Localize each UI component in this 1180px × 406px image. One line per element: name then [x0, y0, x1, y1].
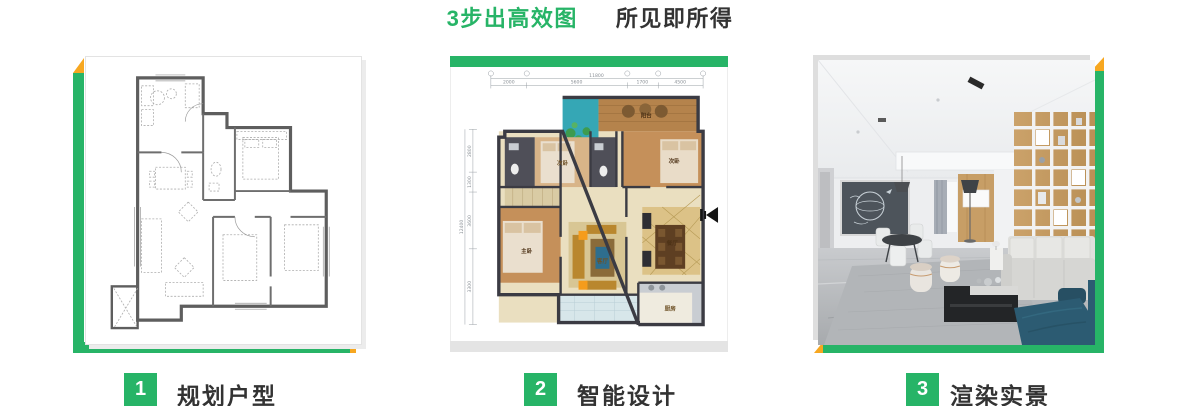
room-label-kitchen: 厨房: [665, 305, 677, 313]
dim-left-4: 3300: [467, 281, 473, 293]
shelving-unit: [1014, 112, 1095, 254]
green-accent-bar: [450, 56, 728, 67]
corner-triangle-icon: [73, 58, 84, 73]
step1-label: 规划户型: [177, 377, 277, 406]
step3-number-badge: 3: [906, 373, 939, 406]
step3-image-card: [818, 60, 1095, 345]
step3-label: 渲染实景: [950, 377, 1050, 406]
step2-image-card: 2000 5600 1700 4500 11800 2800 1300 3600…: [450, 67, 728, 341]
gray-card-base: [450, 341, 728, 352]
render-photo-image: [818, 60, 1095, 345]
step2-number-badge: 2: [524, 373, 557, 406]
dim-top-2: 5600: [571, 79, 583, 85]
dim-left-total: 12400: [459, 220, 465, 235]
step1-number-badge: 1: [124, 373, 157, 406]
title-highlight: 3步出高效图: [447, 6, 578, 31]
room-label-dining: 餐厅: [666, 239, 679, 247]
dim-left-2: 1300: [467, 176, 473, 188]
color-floorplan-image: 2000 5600 1700 4500 11800 2800 1300 3600…: [451, 67, 727, 341]
room-label-living: 客厅: [596, 257, 609, 265]
dining-room-furniture: [642, 195, 700, 275]
bw-floorplan-image: [86, 57, 361, 344]
dim-left-3: 3600: [467, 215, 473, 227]
step1-image-card: [85, 56, 362, 345]
room-label-master: 主卧: [521, 247, 533, 255]
title-tagline: 所见即所得: [616, 6, 734, 31]
dim-top-total: 11800: [589, 73, 604, 79]
dim-top-3: 1700: [636, 79, 648, 85]
window-curtain: [934, 180, 957, 234]
room-label-balcony: 阳台: [641, 111, 653, 119]
room-label-bedroom2b: 次卧: [669, 157, 681, 165]
dim-top-1: 2000: [503, 79, 515, 85]
green-accent-bar: [73, 73, 84, 353]
promo-banner: 3步出高效图所见即所得: [0, 0, 1180, 406]
dim-left-1: 2800: [467, 145, 473, 157]
page-title: 3步出高效图所见即所得: [0, 1, 1180, 33]
dim-top-4: 4500: [674, 79, 686, 85]
room-label-bedroom2a: 次卧: [557, 159, 569, 167]
living-room-furniture: [569, 222, 627, 290]
step2-label: 智能设计: [577, 377, 677, 406]
